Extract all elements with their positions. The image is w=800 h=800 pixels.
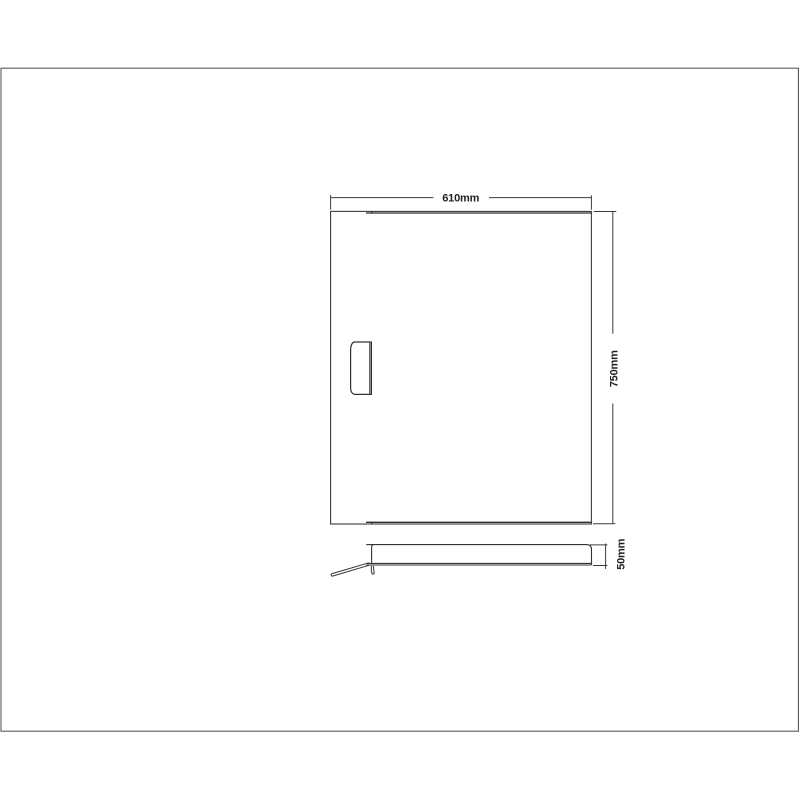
svg-text:50mm: 50mm xyxy=(616,538,628,569)
svg-text:610mm: 610mm xyxy=(442,193,479,205)
svg-text:750mm: 750mm xyxy=(608,350,620,387)
